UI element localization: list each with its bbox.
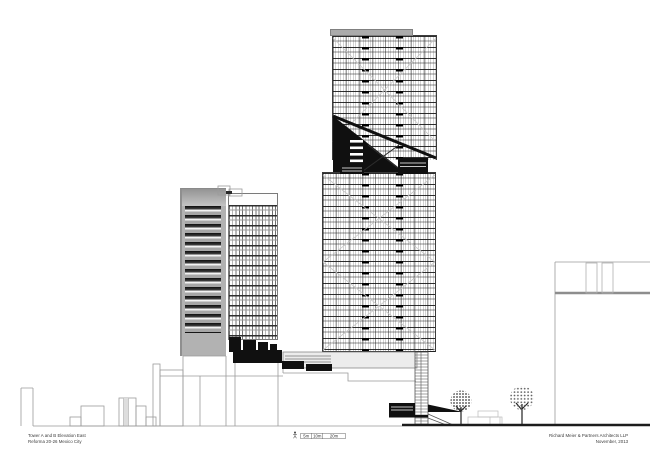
tower-a-core: [415, 352, 428, 425]
tower-a-bracing: [323, 38, 436, 350]
scale-segment: 20m: [323, 434, 345, 439]
drawing-title: Tower A and B Elevation East: [28, 433, 86, 438]
tower-a-transfer-truss: [333, 116, 436, 174]
scale-segment: 10m: [312, 434, 323, 439]
tree-icon: [510, 386, 534, 424]
scale-bar-segments: 5m 10m 20m: [301, 433, 346, 439]
scale-bar: 5m 10m 20m: [292, 431, 346, 439]
tree-icon: [451, 391, 472, 425]
plaza-planters: [468, 411, 502, 425]
scale-label: 20m: [330, 434, 338, 439]
title-block: Tower A and B Elevation East Reforma 20-…: [28, 433, 86, 444]
scale-label: 5m: [303, 434, 309, 439]
parapet-tick: [226, 191, 232, 194]
elevation-sheet: Tower A and B Elevation East Reforma 20-…: [0, 0, 650, 459]
drawing-date: November, 2013: [549, 438, 628, 443]
scale-segment: 5m: [301, 434, 312, 439]
scale-label: 10m: [313, 434, 321, 439]
context-building-right: [555, 262, 650, 425]
architect-name: Richard Meier & Partners Architects LLP: [549, 433, 628, 438]
context-gray-infill: [124, 398, 129, 426]
credit-block: Richard Meier & Partners Architects LLP …: [549, 433, 628, 444]
context-buildings-left: [21, 186, 283, 426]
elevation-linework: [0, 0, 650, 459]
person-icon: [292, 431, 298, 439]
drawing-location: Reforma 20-26 Mexico City: [28, 438, 86, 443]
